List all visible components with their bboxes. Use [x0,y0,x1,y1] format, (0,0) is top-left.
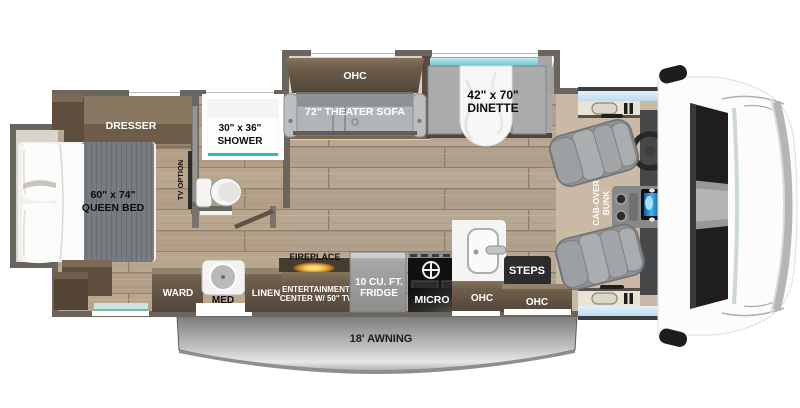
svg-text:BUNK: BUNK [601,190,611,215]
svg-text:30" x 36": 30" x 36" [219,123,262,134]
svg-text:OHC: OHC [343,70,367,82]
svg-text:TV OPTION: TV OPTION [176,160,185,200]
svg-text:60" x 74": 60" x 74" [91,189,136,201]
svg-text:DINETTE: DINETTE [467,101,518,115]
svg-text:MICRO: MICRO [415,294,450,306]
svg-text:STEPS: STEPS [509,265,545,277]
svg-text:CENTER W/ 50" TV: CENTER W/ 50" TV [280,294,353,303]
svg-text:QUEEN BED: QUEEN BED [82,202,145,214]
svg-text:OHC: OHC [471,293,493,304]
svg-text:18' AWNING: 18' AWNING [350,333,413,345]
svg-text:DRESSER: DRESSER [106,120,157,132]
svg-text:FRIDGE: FRIDGE [360,288,398,299]
svg-text:LINEN: LINEN [252,288,281,299]
svg-text:10 CU. FT.: 10 CU. FT. [355,277,403,288]
svg-text:FIREPLACE: FIREPLACE [289,252,340,262]
svg-text:72" THEATER SOFA: 72" THEATER SOFA [305,106,405,118]
svg-text:CAB-OVER: CAB-OVER [591,180,601,225]
svg-text:OHC: OHC [526,297,548,308]
svg-text:MED: MED [212,295,234,306]
svg-text:ENTERTAINMENT: ENTERTAINMENT [282,285,350,294]
svg-text:WARD: WARD [163,288,194,299]
svg-text:SHOWER: SHOWER [218,136,264,147]
svg-text:42" x 70": 42" x 70" [467,88,518,102]
